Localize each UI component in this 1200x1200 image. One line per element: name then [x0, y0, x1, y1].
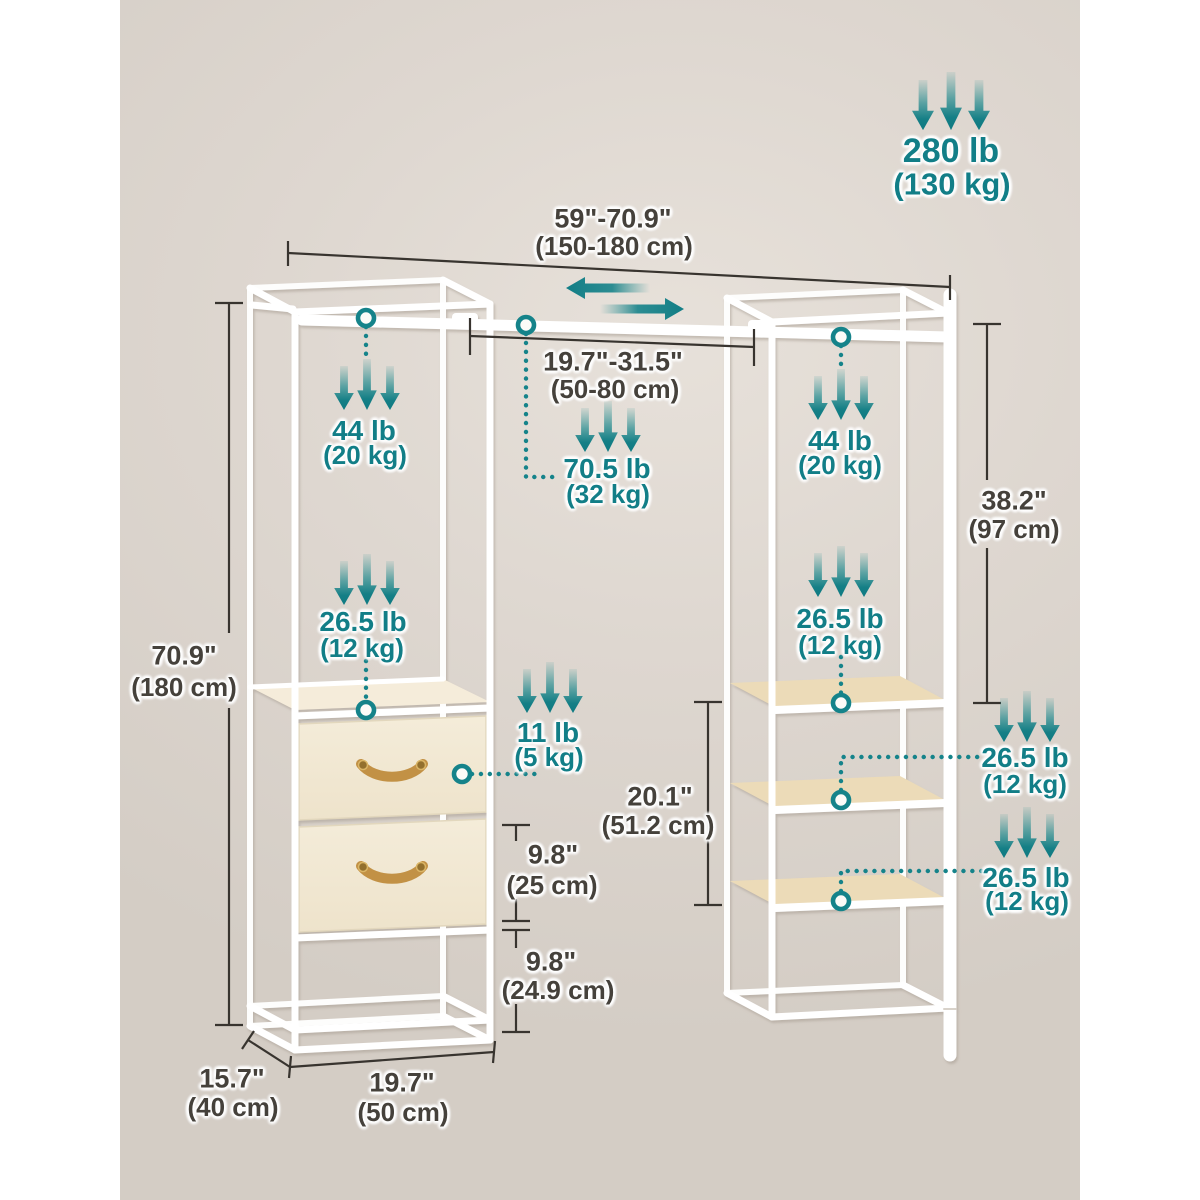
- dim-overall-height: [215, 303, 243, 1025]
- total-capacity-kg: (130 kg): [893, 169, 1010, 200]
- arrows-shelf-bottom: [994, 807, 1060, 858]
- overall-width-cm: (150-180 cm): [535, 233, 693, 259]
- arrows-drawer: [517, 662, 583, 713]
- rod-height-in: 38.2": [981, 488, 1046, 515]
- shelf-middle-capacity-kg: (12 kg): [983, 771, 1067, 797]
- arrows-shelf-top: [808, 546, 874, 597]
- drawer-height-cm: (25 cm): [506, 872, 597, 898]
- fabric-drawers: [299, 716, 486, 932]
- shelf-section-height-cm: (51.2 cm): [602, 812, 715, 838]
- rod-right-capacity-kg: (20 kg): [798, 452, 882, 478]
- drawer-capacity-kg: (5 kg): [514, 744, 583, 770]
- arrows-total-capacity: [912, 72, 990, 130]
- tower-width-in: 19.7": [369, 1070, 434, 1097]
- shelf-bottom-capacity-kg: (12 kg): [985, 888, 1069, 914]
- middle-rod-width-in: 19.7"-31.5": [543, 349, 683, 376]
- rod-left-capacity-kg: (20 kg): [323, 442, 407, 468]
- product-dimension-diagram: 280 lb (130 kg) 59"-70.9" (150-180 cm) 1…: [0, 0, 1200, 1200]
- left-top-capacity-kg: (12 kg): [320, 635, 404, 661]
- right-upright-pole: [944, 295, 956, 1055]
- arrow-left-icon: [566, 277, 650, 299]
- shelf-middle-capacity-lb: 26.5 lb: [981, 744, 1068, 772]
- tower-width-cm: (50 cm): [357, 1099, 448, 1125]
- arrows-left-top: [334, 554, 400, 605]
- shelf-top-capacity-kg: (12 kg): [798, 632, 882, 658]
- arrows-shelf-middle: [994, 691, 1060, 742]
- depth-in: 15.7": [199, 1066, 264, 1093]
- diagram-artwork: [0, 0, 1200, 1200]
- arrow-right-icon: [600, 298, 684, 320]
- clearance-height-in: 9.8": [526, 949, 576, 976]
- rod-middle-capacity-kg: (32 kg): [566, 481, 650, 507]
- shelf-section-height-in: 20.1": [627, 784, 692, 811]
- depth-cm: (40 cm): [187, 1094, 278, 1120]
- rod-height-cm: (97 cm): [968, 516, 1059, 542]
- rod-clamp: [452, 313, 478, 329]
- shelf-top-capacity-lb: 26.5 lb: [796, 605, 883, 633]
- overall-height-in: 70.9": [151, 643, 216, 670]
- rod-clamp: [748, 320, 774, 336]
- expand-direction-arrows: [566, 277, 684, 320]
- clearance-height-cm: (24.9 cm): [502, 977, 615, 1003]
- middle-rod-width-cm: (50-80 cm): [551, 376, 680, 402]
- left-top-capacity-lb: 26.5 lb: [319, 608, 406, 636]
- arrows-rod-right: [808, 369, 874, 420]
- drawer-height-in: 9.8": [528, 842, 578, 869]
- arrows-rod-left: [334, 359, 400, 410]
- arrows-rod-middle: [575, 401, 641, 452]
- dim-shelf-section-height: [694, 702, 722, 905]
- overall-width-in: 59"-70.9": [554, 206, 671, 233]
- total-capacity-lb: 280 lb: [903, 134, 999, 168]
- overall-height-cm: (180 cm): [131, 674, 237, 700]
